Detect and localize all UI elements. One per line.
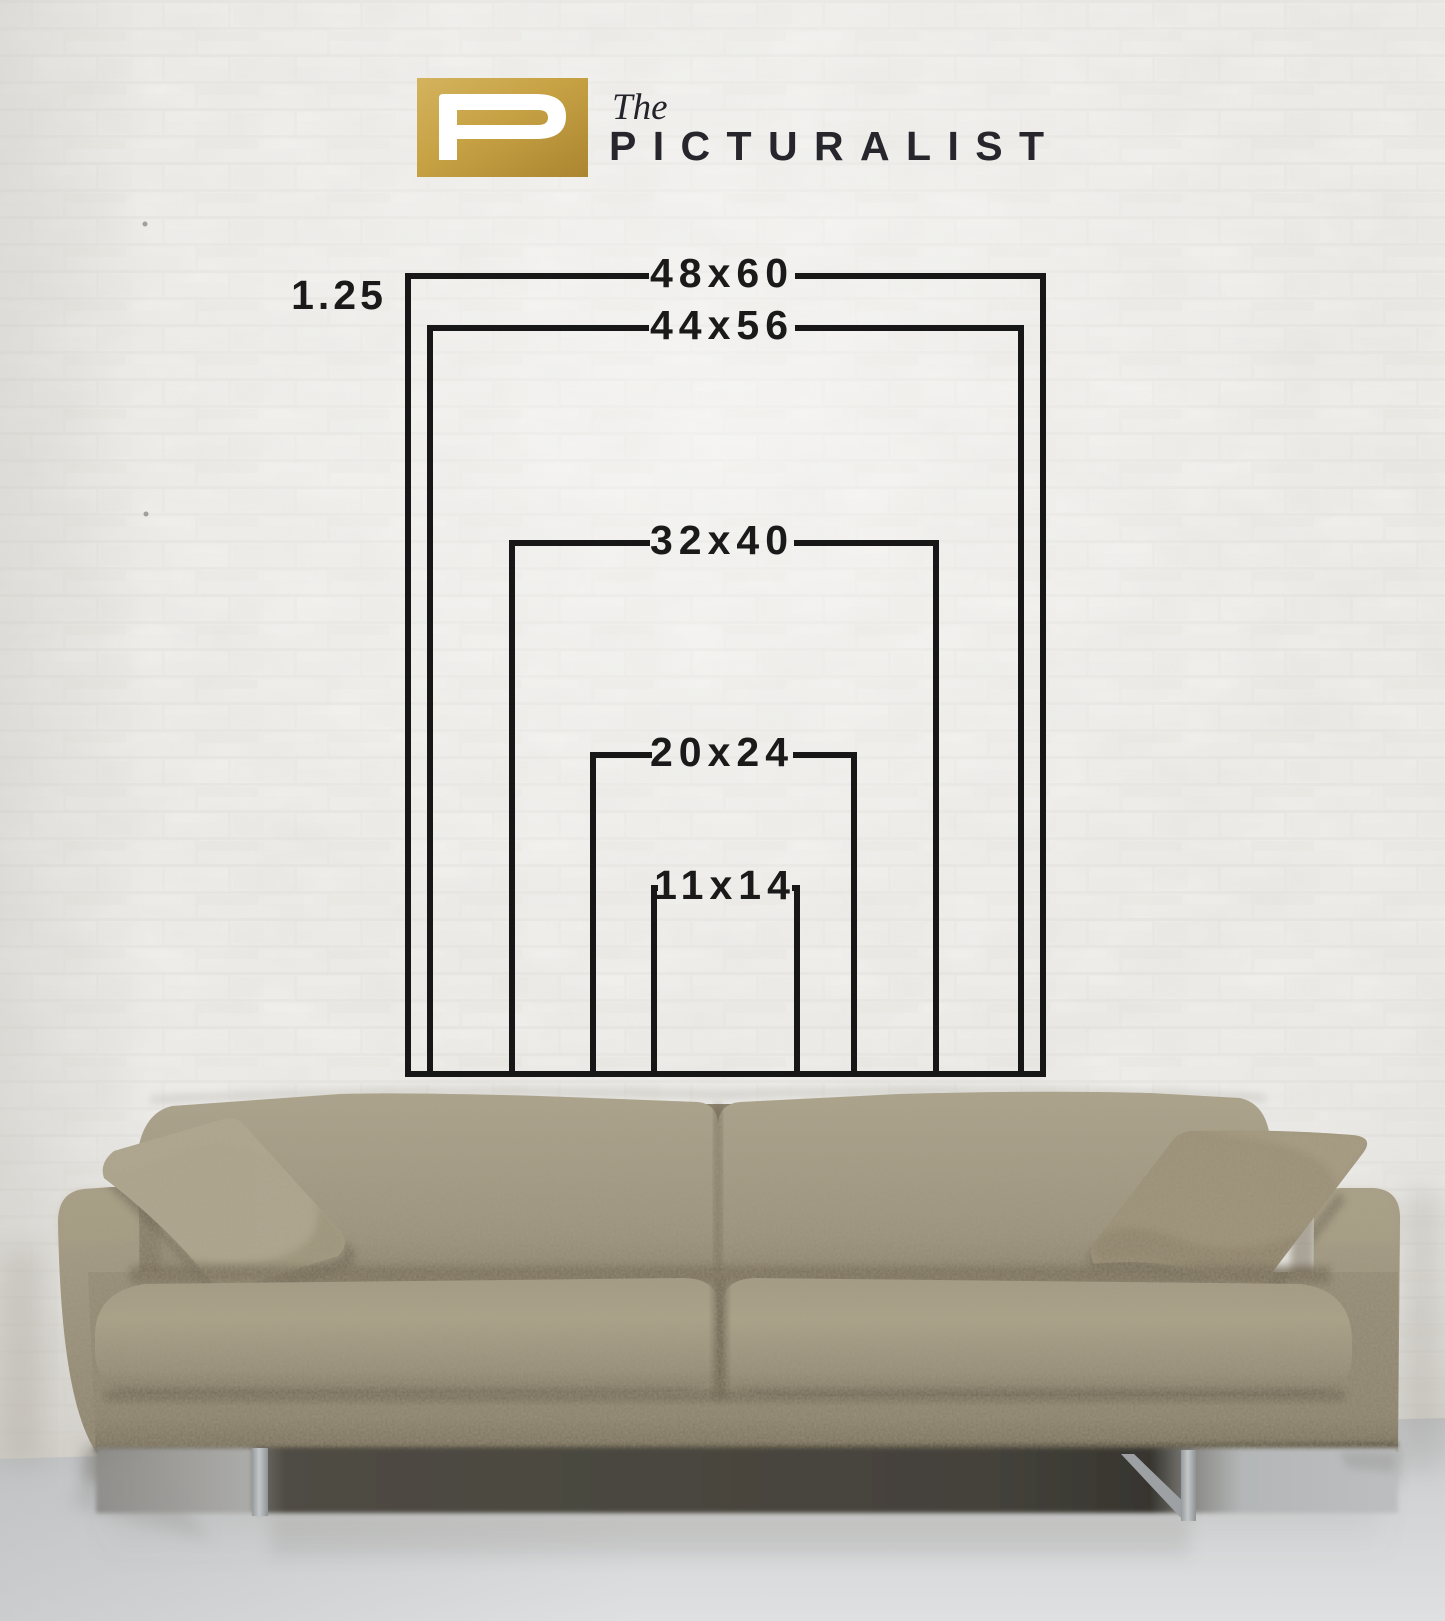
svg-text:11x14: 11x14 <box>654 862 796 908</box>
svg-text:1.25: 1.25 <box>291 272 387 318</box>
svg-text:48x60: 48x60 <box>650 250 794 296</box>
svg-text:PICTURALIST: PICTURALIST <box>609 123 1060 169</box>
svg-text:44x56: 44x56 <box>650 302 794 348</box>
svg-text:20x24: 20x24 <box>650 729 794 775</box>
svg-text:The: The <box>612 87 668 128</box>
svg-text:32x40: 32x40 <box>650 517 794 563</box>
